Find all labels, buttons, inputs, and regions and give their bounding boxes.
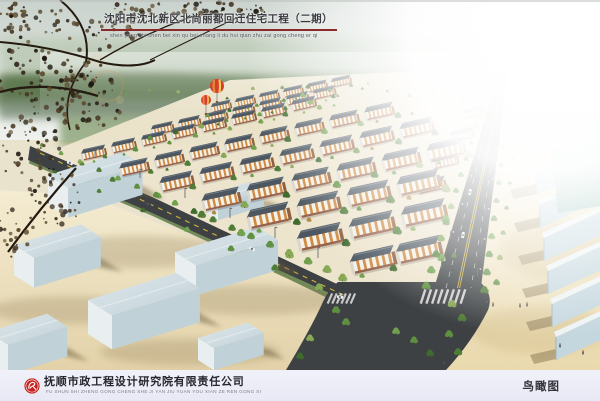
company-block: 抚顺市政工程设计研究院有限责任公司 FU SHUN SHI ZHENG GONG… xyxy=(44,377,261,395)
company-logo-icon xyxy=(24,378,40,394)
view-type-label: 鸟瞰图 xyxy=(523,378,561,394)
aerial-rendering: 沈阳市沈北新区北尚丽都回迁住宅工程（二期） shen yang shi shen… xyxy=(0,0,600,370)
company-name: 抚顺市政工程设计研究院有限责任公司 xyxy=(44,377,261,388)
company-name-pinyin: FU SHUN SHI ZHENG GONG CHENG SHE JI YAN … xyxy=(46,390,261,395)
birdseye-scene xyxy=(0,0,600,370)
footer-bar: 抚顺市政工程设计研究院有限责任公司 FU SHUN SHI ZHENG GONG… xyxy=(0,370,600,401)
presentation-board: 沈阳市沈北新区北尚丽都回迁住宅工程（二期） shen yang shi shen… xyxy=(0,0,600,401)
